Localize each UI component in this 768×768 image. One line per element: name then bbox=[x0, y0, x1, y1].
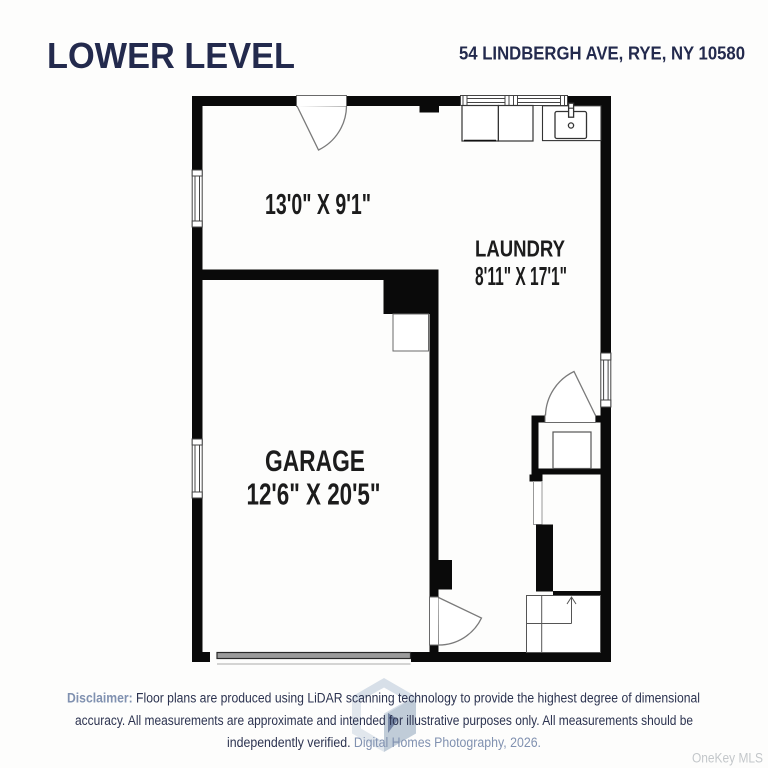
svg-text:8'11" X 17'1": 8'11" X 17'1" bbox=[475, 263, 567, 291]
svg-text:Disclaimer: Floor plans are pr: Disclaimer: Floor plans are produced usi… bbox=[67, 691, 700, 706]
svg-text:accuracy. All measurements are: accuracy. All measurements are approxima… bbox=[75, 713, 693, 728]
svg-text:12'6" X 20'5": 12'6" X 20'5" bbox=[247, 478, 381, 512]
svg-text:13'0" X 9'1": 13'0" X 9'1" bbox=[265, 189, 371, 221]
svg-text:LAUNDRY: LAUNDRY bbox=[475, 236, 565, 262]
svg-text:GARAGE: GARAGE bbox=[265, 445, 365, 478]
svg-text:LOWER LEVEL: LOWER LEVEL bbox=[47, 35, 295, 76]
svg-text:OneKey MLS: OneKey MLS bbox=[692, 751, 763, 766]
svg-text:54 LINDBERGH AVE, RYE, NY 1058: 54 LINDBERGH AVE, RYE, NY 10580 bbox=[459, 44, 745, 64]
svg-text:independently verified. Digita: independently verified. Digital Homes Ph… bbox=[227, 735, 541, 750]
